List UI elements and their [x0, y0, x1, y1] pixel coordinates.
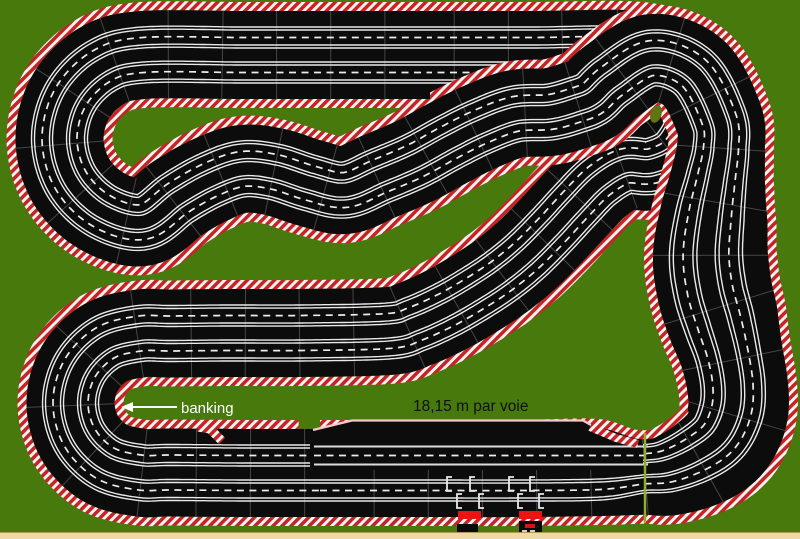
svg-text:18,15 m par voie: 18,15 m par voie [413, 398, 528, 415]
svg-text:banking: banking [181, 400, 234, 417]
